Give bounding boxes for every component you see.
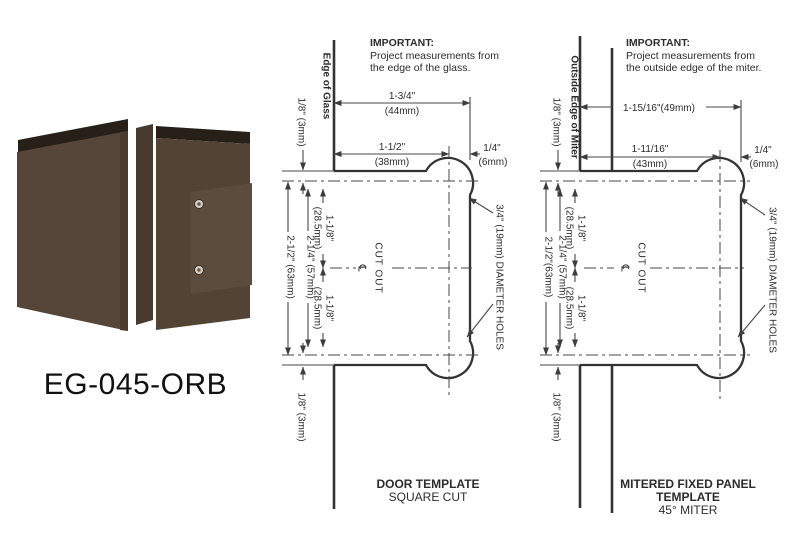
miter-title-line2: TEMPLATE (656, 490, 720, 504)
miter-dim-top-offset: 1/8" (3mm) (551, 97, 562, 146)
door-dim-width-overall-mm: (44mm) (385, 106, 419, 117)
hinge-left-plate (17, 131, 128, 331)
hinge-screw-bottom-center (197, 268, 201, 272)
door-important-heading: IMPORTANT: (370, 37, 434, 49)
door-title-line1: DOOR TEMPLATE (376, 477, 479, 491)
door-holes-label: 3/4" (19mm) DIAMETER HOLES (494, 204, 505, 350)
miter-dim-width-to-center-mm: (43mm) (633, 159, 667, 170)
door-dim-center-to-edge: 1/4" (483, 143, 501, 154)
door-dim-width-overall: 1-3/4" (389, 91, 416, 102)
door-dim-width-to-center-mm: (38mm) (375, 157, 409, 168)
miter-edge-label: Outside Edge of Miter (569, 55, 580, 158)
miter-title-line1: MITERED FIXED PANEL (620, 477, 756, 491)
templates-drawing: Edge of Glass IMPORTANT: Project measure… (0, 0, 799, 550)
miter-dim-center-upper-mm: (28.5mm) (564, 207, 575, 250)
door-dim-center-lower: 1-1/8" (324, 295, 335, 322)
door-dim-center-upper-mm: (28.5mm) (312, 207, 323, 250)
door-dim-center-lower-mm: (28.5mm) (312, 287, 323, 330)
miter-dim-width-to-center: 1-11/16" (632, 144, 669, 155)
door-dim-top-offset: 1/8" (3mm) (296, 97, 307, 146)
spec-sheet-page: Edge of Glass IMPORTANT: Project measure… (0, 0, 799, 550)
miter-title-line3: 45° MITER (659, 503, 718, 517)
miter-dim-center-to-edge: 1/4" (754, 145, 772, 156)
door-dim-bottom-offset: 1/8" (3mm) (296, 392, 307, 441)
door-dim-center-upper: 1-1/8" (324, 215, 335, 242)
door-dim-center-to-edge-mm: (6mm) (479, 157, 508, 168)
miter-dim-center-upper: 1-1/8" (576, 215, 587, 242)
hinge-left-plate-shade (120, 131, 128, 331)
miter-dim-center-to-edge-mm: (6mm) (750, 159, 779, 170)
miter-centerline-symbol: ℄ (619, 263, 632, 271)
miter-important-line2: the outside edge of the miter. (626, 62, 761, 74)
miter-dim-bottom-offset: 1/8" (3mm) (551, 392, 562, 441)
door-template: Edge of Glass IMPORTANT: Project measure… (282, 37, 507, 509)
door-dim-height-overall: 2-1/2" (63mm) (285, 235, 296, 299)
miter-dim-width-overall: 1-15/16"(49mm) (623, 103, 695, 114)
product-code: EG-045-ORB (8, 368, 263, 402)
door-title-line2: SQUARE CUT (389, 490, 468, 504)
door-centerline-symbol: ℄ (356, 263, 369, 271)
miter-dim-height-overall: 2-1/2"(63mm) (543, 237, 554, 298)
miter-dim-center-lower-mm: (28.5mm) (564, 287, 575, 330)
door-important-line2: the edge of the glass. (370, 62, 470, 74)
miter-cutout-label: CUT OUT (636, 242, 647, 293)
miter-dim-center-lower: 1-1/8" (576, 295, 587, 322)
miter-important-heading: IMPORTANT: (626, 37, 690, 49)
miter-important-line1: Project measurements from (626, 50, 755, 62)
hinge-photo (17, 119, 252, 331)
miter-template: Outside Edge of Miter IMPORTANT: Project… (540, 36, 778, 517)
door-dim-width-to-center: 1-1/2" (379, 142, 406, 153)
hinge-screw-top-center (197, 202, 201, 206)
door-extension-lines (282, 97, 470, 365)
door-important-line1: Project measurements from (370, 50, 499, 62)
door-edge-label: Edge of Glass (321, 53, 332, 120)
hinge-center-barrel (136, 124, 153, 325)
door-cutout-label: CUT OUT (373, 242, 384, 293)
miter-holes-label: 3/4" (19mm) DIAMETER HOLES (767, 207, 778, 353)
